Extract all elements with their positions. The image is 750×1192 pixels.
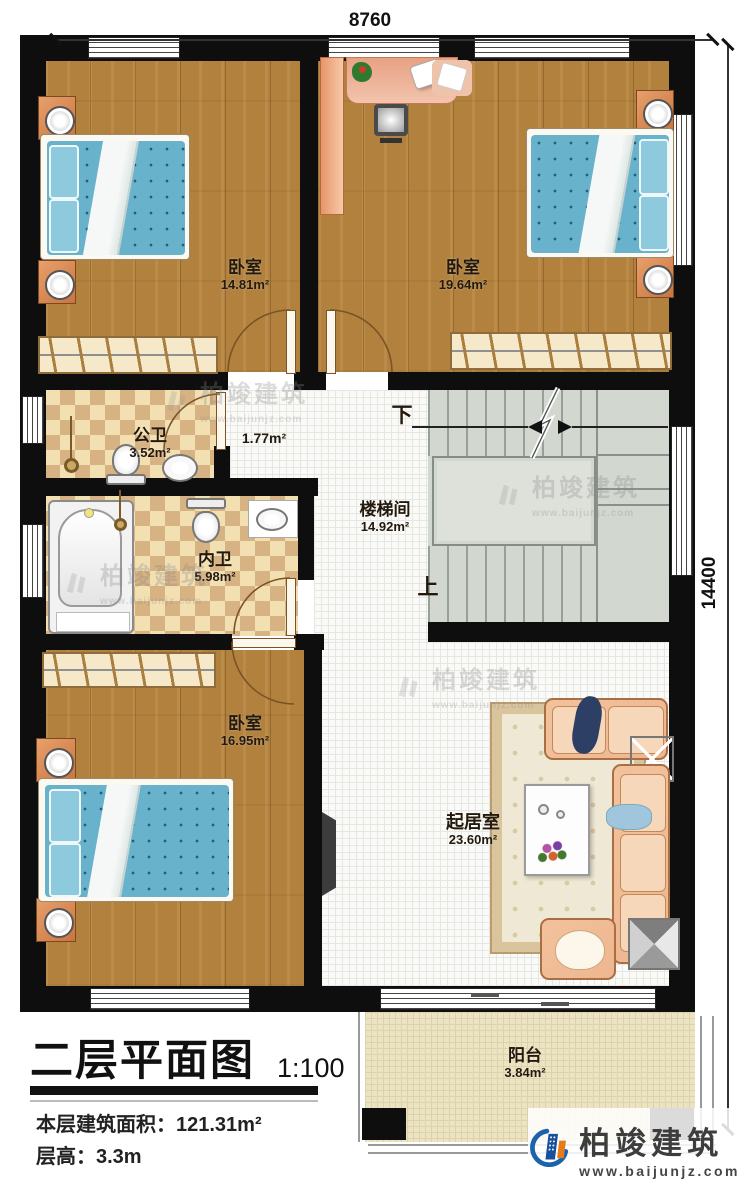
room-name: 公卫 <box>105 426 195 446</box>
pillow <box>49 843 81 897</box>
wall-h1-c <box>388 372 695 390</box>
side-table <box>628 918 680 970</box>
monitor-stand <box>380 138 402 143</box>
bed <box>526 128 674 258</box>
stairs-up-label: 上 <box>414 576 442 600</box>
window-left-public-bath <box>22 396 44 444</box>
floor-height-text: 层高：3.3m <box>36 1140 142 1169</box>
drain-handle <box>119 490 121 518</box>
floor-plan-page: { "dimensions": { "top": "8760", "right"… <box>0 0 750 1192</box>
coffee-table <box>524 784 590 876</box>
tub-panel <box>56 612 130 632</box>
wall-ensuite-right <box>298 478 314 580</box>
lamp-icon <box>44 908 74 938</box>
stair-flight-lower <box>428 546 596 622</box>
bed <box>38 778 234 902</box>
flower-bouquet <box>538 838 568 864</box>
tv <box>322 812 336 896</box>
nightstand <box>36 898 76 942</box>
window-right-stairwell <box>671 426 693 576</box>
room-name: 阳台 <box>460 1046 590 1066</box>
room-name: 楼梯间 <box>330 500 440 520</box>
stairs-up-text: 上 <box>418 576 439 599</box>
sofa-cushion <box>620 834 666 892</box>
room-label-hall: 1.77m² <box>228 430 300 446</box>
door-leaf-bedroom-top-left <box>286 310 296 374</box>
towel <box>436 62 468 92</box>
room-area: 16.95m² <box>190 734 300 749</box>
title-underline-thin <box>30 1100 318 1102</box>
wardrobe <box>450 332 672 370</box>
pillow <box>49 199 79 253</box>
plant-flower <box>359 66 366 73</box>
room-area: 3.84m² <box>460 1066 590 1081</box>
brand-logo-icon <box>528 1115 571 1181</box>
room-label-bedroom-top-left: 卧室 14.81m² <box>195 258 295 292</box>
room-name: 内卫 <box>165 550 265 570</box>
window-right-bedroom <box>671 114 693 266</box>
title-block: 二层平面图 1:100 <box>30 1026 345 1088</box>
wall-living-left <box>304 648 322 986</box>
room-label-living-room: 起居室 23.60m² <box>418 812 528 848</box>
pillow <box>639 139 669 195</box>
wall-public-bath-right <box>214 446 230 480</box>
faucet-icon <box>84 508 94 518</box>
room-area: 1.77m² <box>228 430 300 446</box>
wall-h1-b <box>294 372 326 390</box>
stair-handrail-line <box>598 454 669 456</box>
brand-url: www.baijunjz.com <box>579 1163 740 1179</box>
floor-area-text: 本层建筑面积：121.31m² <box>36 1108 262 1137</box>
wall-bedrooms-divider <box>300 35 318 380</box>
nightstand <box>636 90 674 132</box>
cabinet <box>320 57 344 215</box>
door-leaf-public-bath <box>216 392 226 450</box>
toilet-tank <box>186 498 226 509</box>
room-label-bedroom-bottom: 卧室 16.95m² <box>190 714 300 748</box>
dimension-top-value: 8760 <box>320 10 420 32</box>
plant-icon <box>352 62 372 82</box>
bathtub-basin <box>58 509 122 607</box>
person-figure <box>606 804 652 830</box>
toilet-tank <box>106 474 146 485</box>
lamp-icon <box>643 265 673 295</box>
wardrobe <box>38 336 218 374</box>
room-area: 3.52m² <box>105 446 195 461</box>
wardrobe <box>42 652 216 688</box>
floor-drain <box>114 518 127 531</box>
balcony-sliding-door <box>380 988 656 1010</box>
desk-side-object <box>432 60 472 96</box>
lamp-icon <box>45 270 75 300</box>
stair-direction-line <box>412 426 528 428</box>
room-label-bedroom-top-right: 卧室 19.64m² <box>408 258 518 292</box>
monitor <box>374 104 408 136</box>
cup <box>538 804 549 815</box>
stair-direction-line <box>572 426 668 428</box>
room-name: 起居室 <box>418 812 528 833</box>
pillow <box>639 195 669 251</box>
room-label-ensuite: 内卫 5.98m² <box>165 550 265 584</box>
room-name: 卧室 <box>190 714 300 734</box>
stair-handrail-line <box>598 504 669 506</box>
armchair <box>540 918 616 980</box>
slider-handle <box>471 993 499 997</box>
stair-handrail-line <box>598 488 669 490</box>
room-area: 19.64m² <box>408 278 518 293</box>
floor-drain <box>64 458 79 473</box>
dimension-line-top <box>55 39 713 41</box>
sink <box>256 508 288 531</box>
monitor-screen <box>378 108 404 132</box>
room-area: 23.60m² <box>418 833 528 848</box>
door-leaf-bedroom-bottom <box>232 638 296 648</box>
wall-h3-a <box>20 634 232 650</box>
nightstand <box>636 256 674 298</box>
dimension-line-right <box>727 44 729 1130</box>
drain-handle <box>70 416 72 460</box>
door-leaf-ensuite <box>286 578 296 636</box>
wall-h2 <box>20 478 318 496</box>
room-area: 14.92m² <box>330 520 440 535</box>
lamp-icon <box>45 106 75 136</box>
stair-landing-edge <box>596 390 598 622</box>
stairs-down-text: 下 <box>392 404 413 427</box>
window-bottom-bedroom <box>90 988 250 1010</box>
armchair-cushion <box>555 930 605 970</box>
stair-void <box>437 461 591 541</box>
lamp-icon <box>44 748 74 778</box>
plan-scale: 1:100 <box>277 1053 345 1088</box>
stair-flight-upper <box>428 390 596 456</box>
lamp-icon <box>643 99 673 129</box>
plan-title: 二层平面图 <box>30 1026 255 1088</box>
room-label-public-bath: 公卫 3.52m² <box>105 426 195 460</box>
balcony-rail <box>358 1012 360 1142</box>
room-area: 5.98m² <box>165 570 265 585</box>
cup <box>556 810 565 819</box>
room-area: 14.81m² <box>195 278 295 293</box>
room-label-balcony: 阳台 3.84m² <box>460 1046 590 1080</box>
window-left-ensuite <box>22 524 44 598</box>
pillow <box>49 145 79 199</box>
nightstand <box>38 260 76 304</box>
room-name: 卧室 <box>408 258 518 278</box>
title-underline-thick <box>30 1086 318 1095</box>
toilet <box>192 511 220 543</box>
stairs-down-label: 下 <box>388 404 416 428</box>
slider-handle <box>541 1002 569 1006</box>
nightstand <box>36 738 76 782</box>
brand-name: 柏竣建筑 <box>579 1118 740 1163</box>
door-leaf-bedroom-top-right <box>326 310 336 374</box>
wall-h1-a <box>20 372 228 390</box>
wall-stair-bottom <box>428 622 669 642</box>
brand-logo: 柏竣建筑 www.baijunjz.com <box>528 1108 740 1188</box>
pillow <box>49 789 81 843</box>
room-name: 卧室 <box>195 258 295 278</box>
bed <box>40 134 190 260</box>
room-label-stairwell: 楼梯间 14.92m² <box>330 500 440 534</box>
dimension-right-value: 14400 <box>699 545 721 621</box>
balcony-pillar <box>362 1108 406 1140</box>
